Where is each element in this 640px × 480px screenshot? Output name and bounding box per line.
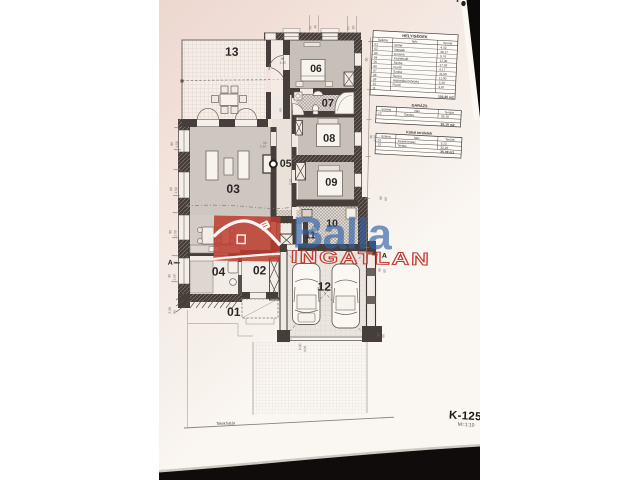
svg-text:06: 06 [310,63,322,75]
svg-text:11: 11 [372,86,376,90]
svg-text:90: 90 [167,274,171,278]
svg-text:6.00: 6.00 [298,343,302,350]
svg-text:02: 02 [253,263,267,277]
svg-text:1.50: 1.50 [172,274,176,281]
svg-text:90: 90 [346,26,350,30]
svg-text:Garázs: Garázs [404,113,415,118]
svg-text:13: 13 [225,45,239,59]
svg-text:60: 60 [351,25,355,29]
svg-text:M=1:10: M=1:10 [458,422,475,429]
svg-text:Száma: Száma [381,107,391,111]
svg-text:90: 90 [376,333,380,337]
svg-text:01: 01 [227,305,241,319]
svg-text:90: 90 [379,196,383,200]
svg-text:60: 60 [381,334,385,338]
svg-text:2.10: 2.10 [288,178,292,185]
svg-text:07: 07 [322,98,334,110]
svg-text:3,87: 3,87 [438,85,444,89]
svg-text:A: A [168,260,173,267]
svg-text:1.50: 1.50 [174,187,178,194]
svg-text:90: 90 [308,25,312,29]
svg-text:90: 90 [173,310,177,314]
svg-text:13: 13 [377,142,381,146]
svg-text:05: 05 [280,158,292,170]
svg-text:2.38: 2.38 [168,307,172,314]
svg-text:INGATLAN: INGATLAN [291,246,431,269]
svg-text:35,39 m2: 35,39 m2 [440,150,454,155]
svg-text:90: 90 [169,187,173,191]
svg-text:Száma: Száma [378,38,388,42]
svg-text:09: 09 [325,177,337,189]
svg-text:90: 90 [365,57,369,61]
svg-text:Fürdő: Fürdő [392,83,401,87]
svg-text:60: 60 [313,25,317,29]
svg-text:04: 04 [212,264,226,278]
svg-text:Terasz: Terasz [397,143,407,147]
svg-text:08: 08 [323,133,335,145]
svg-text:2.10: 2.10 [260,144,267,148]
svg-text:2.45: 2.45 [280,61,287,65]
svg-text:4.05: 4.05 [303,346,307,353]
svg-text:Telekhatár: Telekhatár [216,420,236,426]
svg-text:60: 60 [384,197,388,201]
svg-text:90: 90 [378,268,382,272]
svg-text:Név: Név [414,109,420,113]
svg-text:GARÁZS: GARÁZS [411,103,428,109]
svg-text:90: 90 [168,230,172,234]
svg-text:26,19: 26,19 [441,114,449,118]
svg-text:90: 90 [170,142,174,146]
svg-text:12: 12 [317,279,331,293]
svg-text:90: 90 [263,141,267,145]
svg-text:Száma: Száma [381,134,391,138]
svg-text:12: 12 [378,111,382,115]
svg-text:60: 60 [383,269,387,273]
svg-text:Név: Név [412,39,418,43]
svg-text:90: 90 [279,108,283,112]
svg-text:26,19 m2: 26,19 m2 [440,122,454,127]
svg-text:1.50: 1.50 [175,141,179,148]
svg-text:1.50: 1.50 [173,230,177,237]
svg-text:102,35 m2: 102,35 m2 [438,95,454,100]
svg-text:03: 03 [226,182,240,196]
